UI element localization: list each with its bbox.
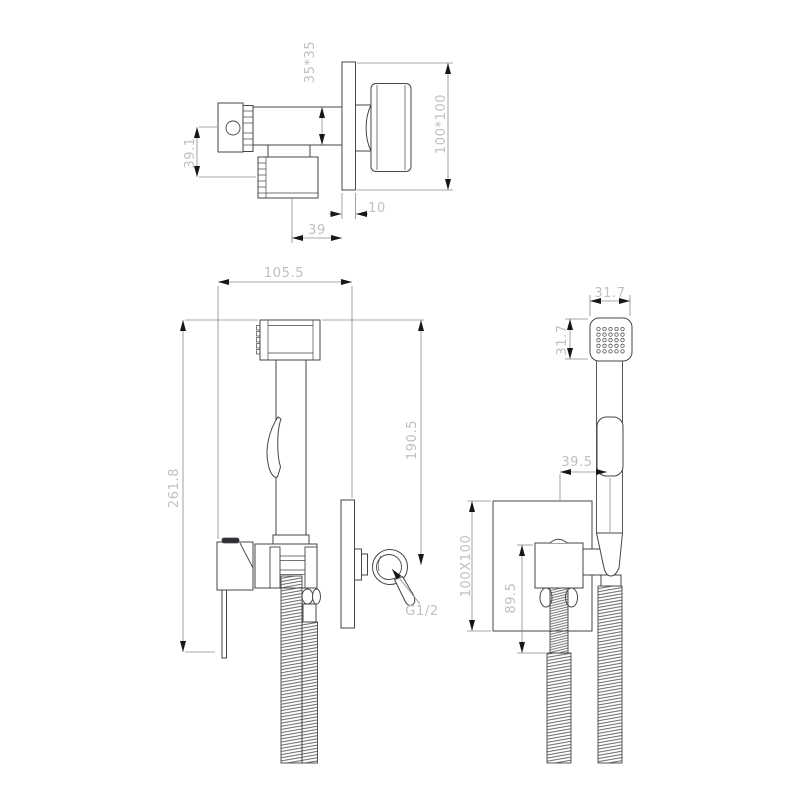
view-assembly-front: 31.7 31.7 39.5 100X100 89.5 (459, 286, 632, 763)
hose-front-right (598, 586, 622, 763)
dim-label-head-width: 31.7 (594, 286, 625, 301)
wall-holder (217, 542, 253, 590)
dim-label-outlet-offset: 39.1 (183, 137, 198, 168)
dim-label-connection-thread: G1/2 (405, 604, 438, 619)
handset-grip-profile (276, 360, 306, 535)
dim-label-handset-offset: 39.5 (561, 455, 592, 470)
valve-body-front (535, 543, 583, 588)
dim-label-wall-plate-top: 100*100 (434, 94, 449, 154)
dim-label-valve-depth: 39 (308, 223, 326, 238)
wall-plate-profile (341, 500, 355, 628)
view-valve-top: 35*35 39.1 10 39 100*100 (183, 41, 453, 243)
dim-label-head-depth: 31.7 (555, 324, 570, 355)
holder-bracket-front (597, 417, 623, 476)
dim-label-overall-width: 105.5 (264, 266, 304, 281)
handle-flange-step (362, 554, 368, 575)
dim-label-plate-thickness: 10 (368, 201, 386, 216)
hose-nut (302, 589, 313, 604)
dim-label-spout-section: 35*35 (303, 41, 318, 84)
drawing-canvas: 35*35 39.1 10 39 100*100 (0, 0, 800, 800)
valve-neck (268, 145, 310, 157)
hose-outlet-block (258, 157, 318, 198)
wall-plate-edge (342, 62, 356, 190)
holder-pin (222, 590, 227, 658)
handset-head-front (590, 318, 632, 361)
nozzle-face-marks (257, 326, 261, 355)
dim-label-overall-height: 261.8 (167, 468, 182, 508)
knob-stem (356, 105, 372, 151)
handle-lever (395, 577, 415, 606)
dim-label-handset-height: 190.5 (405, 420, 420, 460)
threaded-outlet (550, 588, 568, 653)
hose-nut-2 (313, 589, 321, 604)
handle-flange (355, 549, 362, 580)
spray-cap (218, 103, 243, 152)
valve-body-top (253, 107, 342, 145)
dim-label-valve-drop: 89.5 (504, 582, 519, 613)
dim-label-wall-plate-front: 100X100 (459, 535, 474, 598)
view-assembly-profile: 105.5 261.8 190.5 G1/2 (167, 266, 439, 763)
handset-head-profile (260, 320, 320, 360)
spray-collar (243, 106, 253, 152)
shower-hose-return (302, 622, 318, 763)
holder-cap (222, 538, 239, 543)
handset-hose-collar (601, 575, 621, 586)
hose-front-left (547, 653, 571, 763)
grip-collar (273, 535, 309, 544)
shower-hose (281, 576, 302, 763)
technical-drawing: 35*35 39.1 10 39 100*100 (0, 0, 800, 800)
hose-connector (303, 604, 316, 622)
